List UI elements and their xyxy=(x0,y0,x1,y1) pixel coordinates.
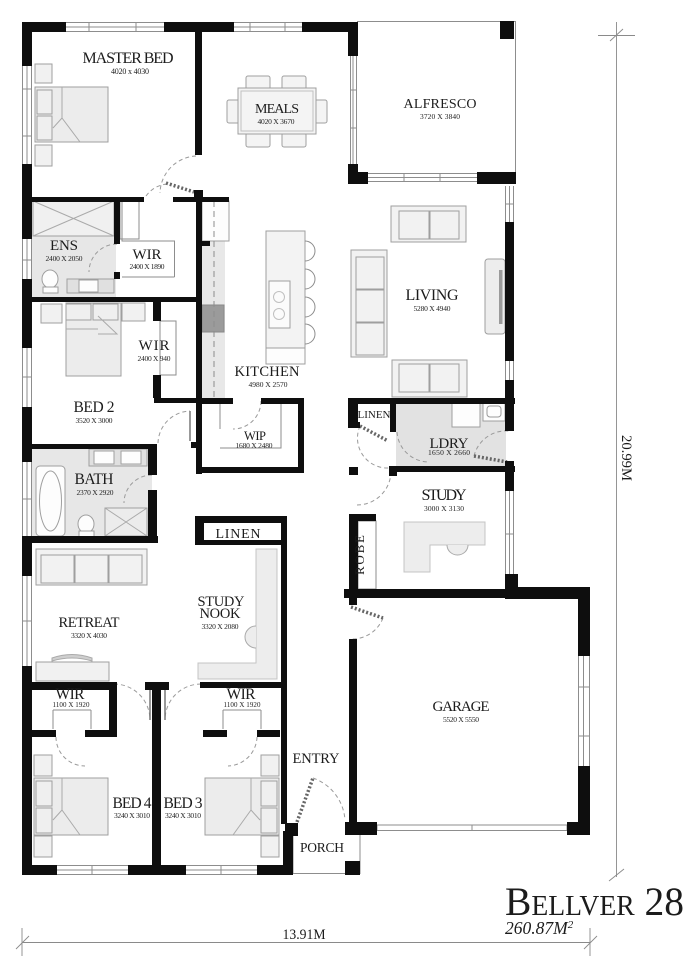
svg-text:STUDY: STUDY xyxy=(422,487,467,504)
svg-text:PORCH: PORCH xyxy=(300,840,344,855)
svg-text:2370 X 2920: 2370 X 2920 xyxy=(77,488,114,497)
svg-text:2400 X 2050: 2400 X 2050 xyxy=(46,254,83,263)
svg-text:LINEN: LINEN xyxy=(216,527,261,542)
svg-text:BED 2: BED 2 xyxy=(74,399,115,416)
svg-text:ALFRESCO: ALFRESCO xyxy=(404,97,477,112)
svg-text:3320 X 2080: 3320 X 2080 xyxy=(202,622,239,631)
svg-text:3520 X 3000: 3520 X 3000 xyxy=(76,416,113,425)
svg-text:LIVING: LIVING xyxy=(406,287,459,304)
svg-text:1100 X 1920: 1100 X 1920 xyxy=(53,701,91,709)
svg-text:1680 X 2480: 1680 X 2480 xyxy=(236,441,273,450)
svg-text:WIR: WIR xyxy=(139,338,170,354)
svg-text:LINEN: LINEN xyxy=(358,409,391,421)
svg-text:2400 X 940: 2400 X 940 xyxy=(138,354,171,363)
svg-text:3240 X 3010: 3240 X 3010 xyxy=(114,811,150,820)
svg-text:MASTER BED: MASTER BED xyxy=(83,50,174,67)
svg-text:1650 X 2660: 1650 X 2660 xyxy=(428,448,470,457)
svg-text:ENS: ENS xyxy=(50,238,78,254)
svg-text:KITCHEN: KITCHEN xyxy=(235,364,301,380)
svg-text:13.91M: 13.91M xyxy=(283,927,326,943)
svg-text:3240 X 3010: 3240 X 3010 xyxy=(165,811,201,820)
svg-text:3320 X 4030: 3320 X 4030 xyxy=(71,631,107,640)
svg-text:WIR: WIR xyxy=(133,247,162,263)
svg-text:5520 X 5550: 5520 X 5550 xyxy=(443,715,479,724)
svg-text:BATH: BATH xyxy=(75,471,114,488)
svg-text:3720 X 3840: 3720 X 3840 xyxy=(420,112,460,121)
svg-text:4980 X 2570: 4980 X 2570 xyxy=(249,380,288,389)
svg-text:20.99M: 20.99M xyxy=(618,435,634,481)
svg-text:1100 X 1920: 1100 X 1920 xyxy=(224,701,262,709)
svg-text:3000 X 3130: 3000 X 3130 xyxy=(424,504,464,513)
svg-text:RETREAT: RETREAT xyxy=(59,615,120,631)
svg-text:BED 4: BED 4 xyxy=(113,795,152,812)
svg-text:ENTRY: ENTRY xyxy=(293,751,341,767)
svg-text:260.87M2: 260.87M2 xyxy=(505,918,574,938)
svg-text:4020 x 4030: 4020 x 4030 xyxy=(111,67,149,76)
svg-text:4020 X 3670: 4020 X 3670 xyxy=(258,117,295,126)
svg-text:NOOK: NOOK xyxy=(200,606,242,622)
svg-text:BED 3: BED 3 xyxy=(164,795,203,812)
svg-text:5280 X 4940: 5280 X 4940 xyxy=(414,304,451,313)
svg-text:2400 X 1890: 2400 X 1890 xyxy=(130,262,165,271)
svg-text:MEALS: MEALS xyxy=(255,102,299,117)
svg-text:GARAGE: GARAGE xyxy=(433,699,490,715)
